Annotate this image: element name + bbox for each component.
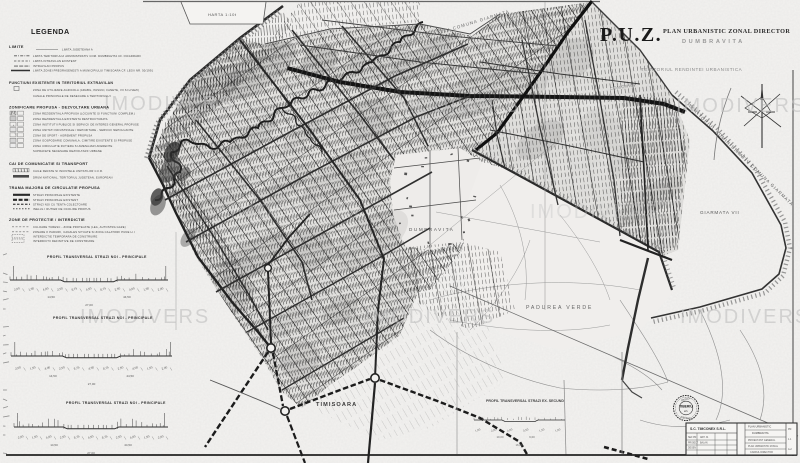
- svg-text:INTERDICTIE TEMPORARA DE CONST: INTERDICTIE TEMPORARA DE CONSTRUIRE: [33, 235, 97, 239]
- svg-text:SUPRAFETE NECESARE DEZVOLTARII: SUPRAFETE NECESARE DEZVOLTARII URBANE: [33, 149, 102, 153]
- svg-text:44,50: 44,50: [126, 374, 134, 378]
- svg-text:A-2: A-2: [788, 448, 792, 451]
- svg-text:14,50: 14,50: [47, 295, 55, 299]
- svg-text:PROFIL TRANSVERSAL STRAZI NOI: PROFIL TRANSVERSAL STRAZI NOI - PRINCIPA…: [47, 255, 147, 259]
- svg-text:DUMBRAVITA: DUMBRAVITA: [752, 431, 769, 435]
- svg-text:P.U.Z.: P.U.Z.: [600, 24, 662, 46]
- svg-text:PLAN URBANISTIC ZONAL: PLAN URBANISTIC ZONAL: [748, 445, 779, 448]
- svg-text:INTRAVILAN PROPUS: INTRAVILAN PROPUS: [33, 64, 64, 68]
- svg-text:14,50: 14,50: [50, 443, 58, 447]
- svg-text:STRAZI PRINCIPALE EXISTENT: STRAZI PRINCIPALE EXISTENT: [33, 198, 78, 202]
- svg-text:IMODIVERS: IMODIVERS: [530, 201, 660, 223]
- svg-text:PROFIL TRANSVERSAL STRAZI NOI: PROFIL TRANSVERSAL STRAZI NOI - PRINCIPA…: [53, 316, 153, 320]
- svg-text:HARTA 1:10t: HARTA 1:10t: [208, 12, 237, 17]
- svg-text:DESEN: DESEN: [688, 448, 696, 450]
- svg-text:CANALE PRINCIPALE DE DESECARE: CANALE PRINCIPALE DE DESECARE A TERITORI…: [33, 94, 111, 98]
- svg-text:ZONE DE PROTECTIE / INTERDICTI: ZONE DE PROTECTIE / INTERDICTIE: [9, 218, 85, 222]
- svg-text:LIMITE: LIMITE: [9, 45, 24, 49]
- svg-text:CAI DE COMUNICATIE SI TRANSPOR: CAI DE COMUNICATIE SI TRANSPORT: [9, 162, 88, 166]
- svg-text:arh.: arh.: [684, 410, 688, 413]
- svg-text:ZONA GOSPODARIE COMUNALA, CIMI: ZONA GOSPODARIE COMUNALA, CIMITIRE EXIST…: [33, 139, 132, 143]
- svg-text:27,00: 27,00: [88, 382, 96, 386]
- svg-text:CADRUL DIRECTOR: CADRUL DIRECTOR: [750, 451, 773, 454]
- svg-text:PLAN URBANISTIC ZONAL DIRECTOR: PLAN URBANISTIC ZONAL DIRECTOR: [663, 28, 790, 35]
- svg-text:44,50: 44,50: [124, 443, 132, 447]
- svg-text:ZONA CIRCULATIE RUTIERA SI AME: ZONA CIRCULATIE RUTIERA SI AMENAJARI AFE…: [33, 144, 112, 148]
- svg-text:TRAMA MAJORA DE CIRCULATIE PR: TRAMA MAJORA DE CIRCULATIE PROPUSA: [9, 186, 100, 190]
- svg-text:SEF PR.: SEF PR.: [688, 437, 697, 439]
- svg-text:INELUL I RUTIER DE OCOLIRE PRO: INELUL I RUTIER DE OCOLIRE PROPUS: [33, 207, 91, 211]
- svg-text:10,00: 10,00: [497, 435, 504, 439]
- svg-text:44,50: 44,50: [123, 295, 131, 299]
- svg-text:14,50: 14,50: [49, 374, 57, 378]
- svg-text:S.C. TIMCONEX S.R.L.: S.C. TIMCONEX S.R.L.: [690, 427, 726, 431]
- svg-text:LIMITA INTRAVILAN EXISTENT: LIMITA INTRAVILAN EXISTENT: [33, 59, 77, 63]
- svg-text:STRAZI NOI CU TENTA COLECTOARE: STRAZI NOI CU TENTA COLECTOARE: [33, 203, 87, 207]
- svg-text:IMODIVERS: IMODIVERS: [676, 95, 800, 117]
- svg-text:ZONA INSTITUTII PUBLICE SI SER: ZONA INSTITUTII PUBLICE SI SERVICII DE I…: [33, 123, 139, 127]
- svg-text:DRUM NATIONAL, TERITORIUL JUDE: DRUM NATIONAL, TERITORIUL JUDETEAN, EURO…: [33, 176, 113, 180]
- svg-text:IMODIVERS: IMODIVERS: [390, 95, 520, 117]
- svg-text:TIMISOARA: TIMISOARA: [316, 402, 357, 408]
- svg-text:DUMBRAVITA: DUMBRAVITA: [682, 39, 745, 45]
- svg-text:ZONA UNITATI INDUSTRIALE / DEP: ZONA UNITATI INDUSTRIALE / DEPOZITARE - …: [33, 128, 133, 132]
- svg-text:ARH. M.: ARH. M.: [700, 436, 709, 439]
- svg-text:ZONA REZIDENTIALA EXISTENTA RE: ZONA REZIDENTIALA EXISTENTA RESTRUCTURAT…: [33, 117, 108, 121]
- svg-text:PADUREA VERDE: PADUREA VERDE: [526, 305, 593, 311]
- svg-text:IMODIVERS: IMODIVERS: [365, 306, 495, 328]
- svg-text:FUNCTIUNI EXISTENTE IN TERITOR: FUNCTIUNI EXISTENTE IN TERITORIUL EXTRAV…: [9, 81, 113, 85]
- svg-text:16,00: 16,00: [516, 443, 523, 447]
- svg-text:PROFIL TRANSVERSAL STRAZI NOI: PROFIL TRANSVERSAL STRAZI NOI - PRINCIPA…: [66, 401, 166, 405]
- svg-text:27,00: 27,00: [87, 451, 95, 455]
- svg-text:TERITORIUL RENDINTEI URBANISTI: TERITORIUL RENDINTEI URBANISTICA: [641, 67, 743, 72]
- svg-text:STRAZI PRINCIPALE EXISTENTE: STRAZI PRINCIPALE EXISTENTE: [33, 193, 80, 197]
- svg-text:CAILE FERATE SI INCINTELE UNIT: CAILE FERATE SI INCINTELE UNITATILOR C.F…: [33, 169, 103, 173]
- svg-text:PR.: PR.: [788, 428, 792, 431]
- svg-text:PLAN URBANISTIC: PLAN URBANISTIC: [748, 425, 771, 429]
- svg-text:TIBERIU: TIBERIU: [679, 405, 693, 409]
- svg-text:ZONA DE SPORT - AGREMENT PROPU: ZONA DE SPORT - AGREMENT PROPUSA: [33, 133, 92, 137]
- svg-text:ZONIFICARE PROPUSA - DEZVOLTAR: ZONIFICARE PROPUSA - DEZVOLTARE URBANA: [9, 106, 109, 110]
- svg-text:INTERDICTII DEFINITIVE DE CONS: INTERDICTII DEFINITIVE DE CONSTRUIRE: [33, 239, 95, 243]
- svg-text:PROIECT: PROIECT: [688, 443, 699, 445]
- svg-text:LIMITA TERITORIULUI ADMINISTRA: LIMITA TERITORIULUI ADMINISTRATIV COM. D…: [33, 54, 141, 58]
- svg-text:DUMBRAVITA: DUMBRAVITA: [409, 227, 454, 232]
- svg-text:IMODIVERS: IMODIVERS: [680, 306, 800, 328]
- svg-text:ZONARE K PADURII, CANALES SITU: ZONARE K PADURII, CANALES SITUATE SI ZON…: [33, 230, 136, 234]
- svg-text:GIARMATA VII: GIARMATA VII: [700, 210, 740, 215]
- svg-text:ZONA DE UTILIZARE AGRICOLA (AR: ZONA DE UTILIZARE AGRICOLA (ARABIL, PASU…: [33, 88, 139, 92]
- svg-text:PROFIL TRANSVERSAL STRAZI EX.: PROFIL TRANSVERSAL STRAZI EX. SECUND: [486, 399, 564, 403]
- svg-text:LEGENDA: LEGENDA: [31, 27, 70, 36]
- svg-text:27,00: 27,00: [85, 303, 93, 307]
- svg-text:LIMITA JUDETEANA A: LIMITA JUDETEANA A: [62, 48, 93, 52]
- svg-text:ZONA REZIDENTIALA PROPUSA (LOC: ZONA REZIDENTIALA PROPUSA (LOCUINTE SI F…: [33, 112, 135, 116]
- svg-text:LIMITA ZONEI PREORASENESTI A M: LIMITA ZONEI PREORASENESTI A MUNICIPIULU…: [33, 69, 154, 73]
- svg-text:BALAN: BALAN: [700, 442, 708, 445]
- svg-text:CULOARE TURESC - ZONE PROTEJAT: CULOARE TURESC - ZONE PROTEJATE (LEA, AU…: [33, 225, 126, 229]
- svg-text:PROIECTANT GENERAL: PROIECTANT GENERAL: [748, 439, 776, 442]
- svg-text:IMODIVERS: IMODIVERS: [230, 201, 360, 223]
- svg-text:6,00: 6,00: [529, 435, 535, 439]
